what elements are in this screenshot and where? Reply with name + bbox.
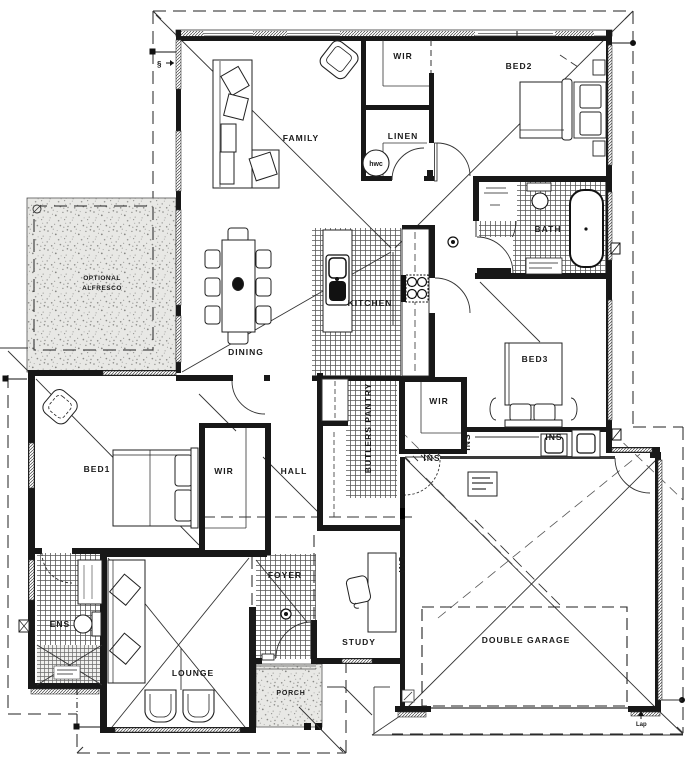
svg-text:KITCHEN: KITCHEN <box>348 298 393 308</box>
svg-text:BED2: BED2 <box>506 61 533 71</box>
svg-text:hwc: hwc <box>369 161 383 168</box>
svg-text:BED1: BED1 <box>84 464 111 474</box>
svg-text:LOUNGE: LOUNGE <box>172 668 214 678</box>
svg-text:PORCH: PORCH <box>276 690 305 697</box>
svg-text:INS: INS <box>462 433 472 450</box>
svg-text:WIR: WIR <box>214 466 234 476</box>
svg-text:WIR: WIR <box>393 51 413 61</box>
svg-text:LINEN: LINEN <box>388 131 419 141</box>
svg-text:INS: INS <box>423 453 440 463</box>
svg-text:FAMILY: FAMILY <box>283 133 319 143</box>
svg-text:OPTIONAL: OPTIONAL <box>83 275 121 282</box>
svg-text:ENS: ENS <box>50 619 70 629</box>
svg-text:WIR: WIR <box>429 396 449 406</box>
svg-text:INS: INS <box>545 432 562 442</box>
svg-text:§: § <box>157 60 162 69</box>
svg-text:INS: INS <box>397 555 407 572</box>
svg-text:ALFRESCO: ALFRESCO <box>82 285 122 292</box>
svg-text:DOUBLE GARAGE: DOUBLE GARAGE <box>482 635 571 645</box>
svg-text:DINING: DINING <box>228 347 264 357</box>
svg-text:STUDY: STUDY <box>342 637 376 647</box>
svg-text:FOYER: FOYER <box>268 570 302 580</box>
svg-text:Lap: Lap <box>636 722 647 728</box>
svg-text:BUTLERS PANTRY: BUTLERS PANTRY <box>363 383 373 474</box>
svg-text:BED3: BED3 <box>522 354 549 364</box>
svg-text:BATH: BATH <box>535 224 562 234</box>
svg-text:HALL: HALL <box>281 466 308 476</box>
